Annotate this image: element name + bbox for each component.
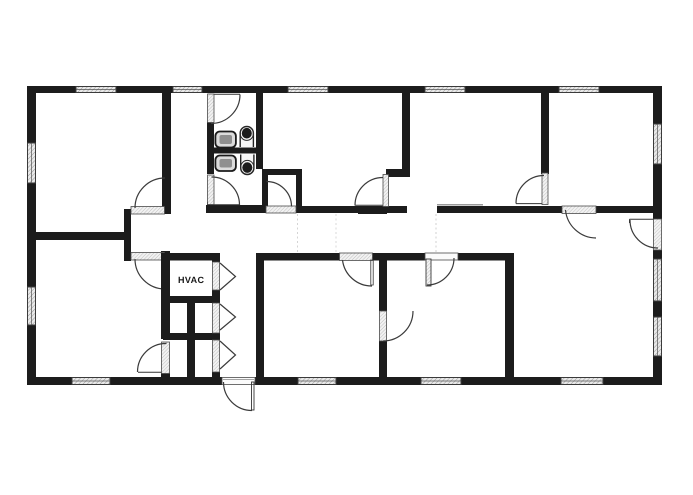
svg-text:HVAC: HVAC: [178, 275, 205, 285]
